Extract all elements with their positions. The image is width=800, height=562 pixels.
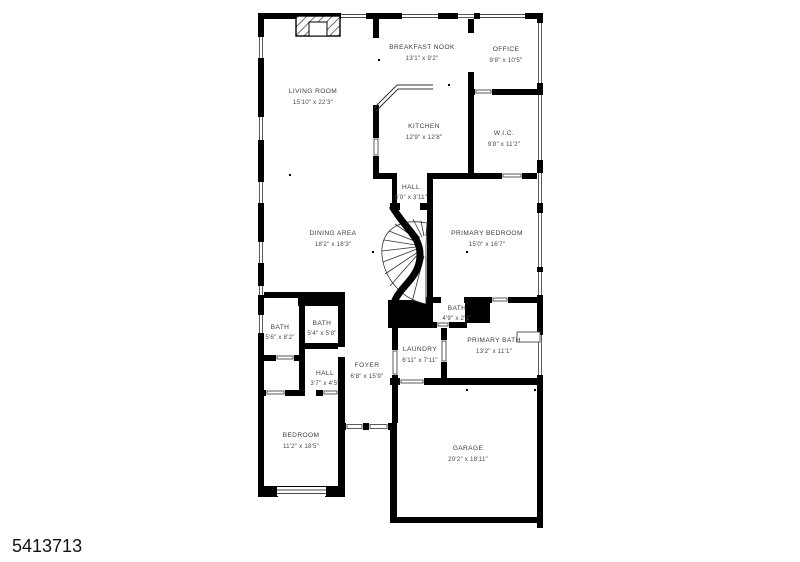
room-label-laundry: LAUNDRY bbox=[403, 346, 437, 353]
room-label-living-room: LIVING ROOM bbox=[289, 88, 337, 95]
room-dims-laundry: 6'11" x 7'11" bbox=[402, 357, 438, 364]
window bbox=[258, 117, 264, 140]
room-label-garage: GARAGE bbox=[453, 445, 484, 452]
room-dims-wic: 9'8" x 11'2" bbox=[488, 141, 520, 148]
room-label-breakfast-nook: BREAKFAST NOOK bbox=[389, 44, 455, 51]
window bbox=[537, 272, 543, 295]
room-label-bath-small: BATH bbox=[448, 305, 467, 312]
room-dims-bath-left: 5'6" x 8'2" bbox=[265, 334, 294, 341]
window bbox=[480, 13, 525, 19]
room-dims-breakfast-nook: 13'1" x 9'2" bbox=[406, 55, 439, 62]
room-dims-foyer: 6'8" x 15'9" bbox=[351, 373, 384, 380]
room-dims-living-room: 15'10" x 22'3" bbox=[293, 99, 333, 106]
room-label-hall-top: HALL bbox=[402, 184, 420, 191]
room-label-bath-left: BATH bbox=[271, 324, 290, 331]
room-label-primary-bedroom: PRIMARY BEDROOM bbox=[451, 230, 523, 237]
room-label-dining-area: DINING AREA bbox=[310, 230, 357, 237]
window bbox=[258, 315, 264, 333]
room-dims-hall-lower: 3'7" x 4'5" bbox=[310, 380, 339, 387]
floorplan-page: LIVING ROOM 15'10" x 22'3" BREAKFAST NOO… bbox=[0, 0, 800, 562]
room-label-office: OFFICE bbox=[493, 46, 520, 53]
listing-id: 5413713 bbox=[12, 536, 82, 557]
floor-plan: LIVING ROOM 15'10" x 22'3" BREAKFAST NOO… bbox=[0, 0, 800, 562]
room-dims-bedroom: 11'2" x 18'5" bbox=[283, 443, 319, 450]
room-label-wic: W.I.C. bbox=[494, 130, 514, 137]
bay-window bbox=[277, 487, 326, 496]
window bbox=[537, 173, 543, 203]
window bbox=[258, 242, 264, 263]
room-dims-office: 9'8" x 10'5" bbox=[490, 57, 523, 64]
window bbox=[258, 37, 264, 58]
room-label-bath-mid: BATH bbox=[313, 320, 332, 327]
window bbox=[537, 213, 543, 267]
window bbox=[402, 13, 438, 19]
room-dims-primary-bath: 13'2" x 11'1" bbox=[476, 348, 512, 355]
room-dims-bath-mid: 5'4" x 5'8" bbox=[307, 330, 336, 337]
room-label-bedroom: BEDROOM bbox=[283, 432, 320, 439]
window bbox=[537, 23, 543, 83]
window bbox=[258, 286, 264, 295]
window bbox=[258, 182, 264, 203]
room-dims-hall-top: 5'0" x 3'11" bbox=[395, 194, 427, 201]
room-label-kitchen: KITCHEN bbox=[408, 123, 440, 130]
room-dims-kitchen: 12'9" x 12'8" bbox=[406, 134, 443, 141]
window bbox=[458, 13, 474, 19]
kitchen-counter bbox=[374, 85, 433, 111]
staircase bbox=[382, 206, 427, 306]
room-dims-primary-bedroom: 15'0" x 16'7" bbox=[469, 241, 506, 248]
room-dims-dining-area: 18'2" x 18'3" bbox=[315, 241, 352, 248]
room-label-primary-bath: PRIMARY BATH bbox=[467, 337, 521, 344]
room-label-hall-lower: HALL bbox=[316, 370, 334, 377]
room-label-foyer: FOYER bbox=[355, 362, 380, 369]
room-dims-garage: 20'2" x 18'11" bbox=[448, 456, 488, 463]
window bbox=[341, 13, 366, 19]
window bbox=[537, 95, 543, 160]
fireplace-icon bbox=[296, 16, 340, 36]
room-dims-bath-small: 4'9" x 2'1" bbox=[442, 315, 471, 322]
